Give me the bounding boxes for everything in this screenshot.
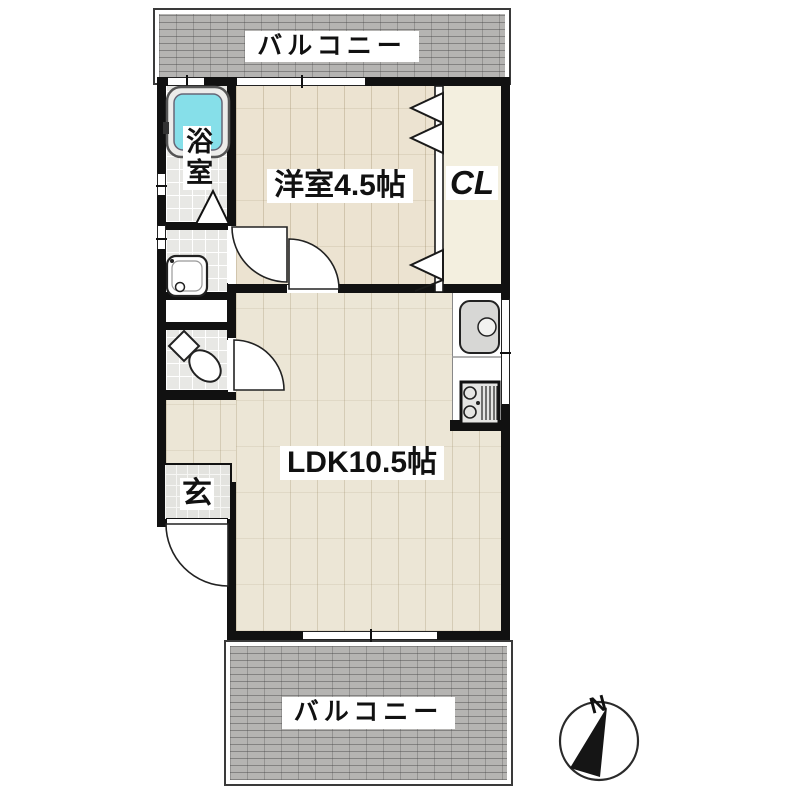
- western-room-label-box: 洋室4.5帖: [245, 167, 435, 205]
- window-western-room: [237, 77, 365, 86]
- bathroom-label-box: 浴室: [179, 120, 215, 196]
- washer-space: [166, 300, 227, 322]
- toilet-floor: [166, 330, 227, 390]
- doorway-washroom: [228, 226, 236, 284]
- window-mullion: [301, 75, 303, 88]
- wall-segment: [157, 292, 236, 300]
- door-arc-entry: [166, 524, 228, 586]
- window-ldk-balcony: [303, 631, 437, 640]
- entrance-label: 玄: [180, 478, 214, 510]
- kitchen-counter: [452, 293, 501, 428]
- wall-segment: [157, 390, 236, 400]
- window-mullion: [370, 629, 372, 642]
- entrance-label-box: 玄: [165, 475, 229, 513]
- window-left-washroom: [157, 224, 166, 251]
- balcony-top-label: バルコニー: [245, 31, 419, 63]
- compass-north-label: N: [587, 689, 610, 718]
- wall-segment: [450, 420, 501, 431]
- compass-north-icon: N: [560, 689, 638, 780]
- window-mullion: [500, 352, 511, 354]
- doorway-toilet: [228, 338, 236, 392]
- window-left-bath: [157, 172, 166, 197]
- washroom-floor: [166, 230, 227, 292]
- balcony-bottom-label: バルコニー: [282, 697, 456, 729]
- closet-label: CL: [446, 166, 498, 201]
- ldk-label-box: LDK10.5帖: [262, 444, 462, 482]
- wall-segment: [227, 284, 510, 293]
- wall-segment: [157, 222, 236, 230]
- window-mullion: [156, 238, 167, 240]
- bathroom-label: 浴室: [183, 126, 211, 190]
- wall-segment: [157, 77, 166, 527]
- window-bathroom: [168, 77, 204, 86]
- wall-segment: [227, 82, 236, 228]
- doorway-western-room: [287, 285, 338, 293]
- window-mullion: [156, 185, 167, 187]
- western-room-label: 洋室4.5帖: [267, 169, 413, 203]
- window-kitchen: [501, 298, 510, 406]
- entry-door-leaf: [166, 518, 228, 527]
- balcony-bottom: バルコニー: [224, 640, 513, 786]
- balcony-top: バルコニー: [153, 8, 511, 85]
- window-mullion: [186, 75, 188, 88]
- closet-label-box: CL: [443, 163, 501, 203]
- wall-segment: [157, 322, 236, 330]
- ldk-label: LDK10.5帖: [280, 446, 444, 480]
- floorplan-canvas: バルコニー バルコニー: [0, 0, 800, 800]
